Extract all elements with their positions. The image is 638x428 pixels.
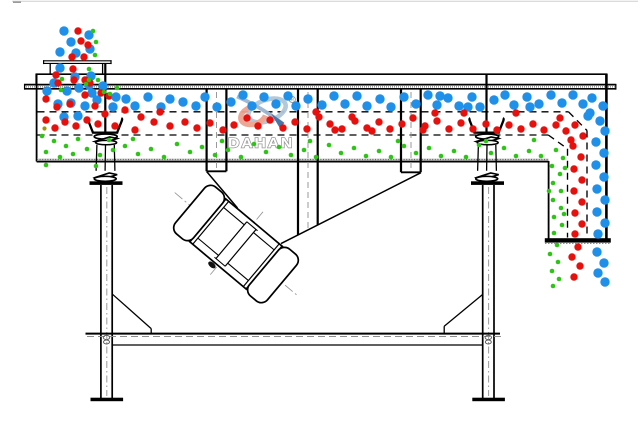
svg-text:DAHAN: DAHAN [228,134,294,150]
